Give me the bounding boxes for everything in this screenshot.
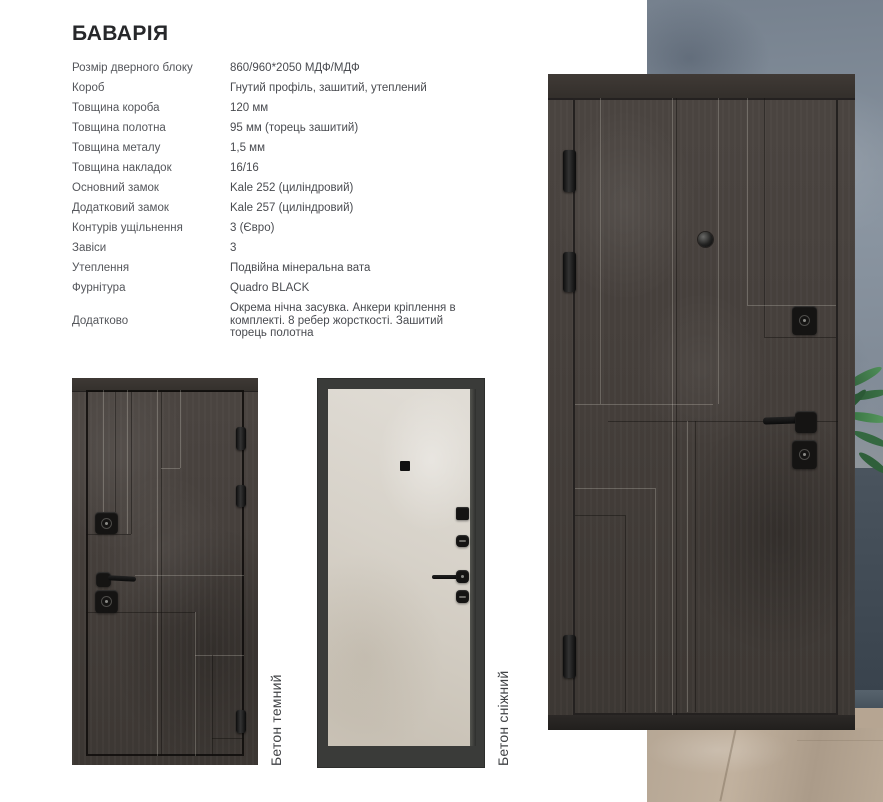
spec-row: УтепленняПодвійна мінеральна вата xyxy=(72,262,492,275)
key-slot xyxy=(459,596,466,598)
spec-label: Короб xyxy=(72,82,230,95)
pattern-line xyxy=(747,305,836,306)
leaf-edge xyxy=(470,389,476,746)
spec-value: 16/16 xyxy=(230,162,488,175)
pattern-line xyxy=(747,98,748,305)
spec-value: Quadro BLACK xyxy=(230,282,488,295)
pattern-line xyxy=(625,515,626,712)
spec-label: Товщина короба xyxy=(72,102,230,115)
spec-row: Товщина короба120 мм xyxy=(72,102,492,115)
pattern-line xyxy=(575,488,655,489)
plant-leaf xyxy=(857,450,883,476)
spec-value: Kale 257 (циліндровий) xyxy=(230,202,488,215)
lock-cylinder xyxy=(95,590,118,613)
spec-value: 860/960*2050 МДФ/МДФ xyxy=(230,62,488,75)
pattern-line xyxy=(676,98,677,715)
spec-value: Kale 252 (циліндровий) xyxy=(230,182,488,195)
spec-table: Розмір дверного блоку860/960*2050 МДФ/МД… xyxy=(72,62,492,347)
spec-row: Основний замокKale 252 (циліндровий) xyxy=(72,182,492,195)
tile-line xyxy=(797,740,883,741)
plant-leaf xyxy=(852,428,883,450)
spec-label: Основний замок xyxy=(72,182,230,195)
pattern-line xyxy=(161,390,162,756)
pattern-line xyxy=(718,98,719,404)
hinge xyxy=(236,710,246,733)
spec-label: Завіси xyxy=(72,242,230,255)
hinge xyxy=(563,150,576,192)
handle-knob xyxy=(461,575,464,578)
variant-label-snow-concrete: Бетон сніжний xyxy=(495,671,511,766)
latch-knob xyxy=(105,522,108,525)
variant-label-dark-concrete: Бетон темний xyxy=(268,674,284,766)
door-preview-snow-concrete xyxy=(317,378,485,768)
door-panel xyxy=(328,389,476,746)
pattern-line xyxy=(672,98,673,715)
door-handle xyxy=(763,416,799,424)
latch-slot xyxy=(459,540,466,542)
spec-value: Гнутий профіль, зашитий, утеплений xyxy=(230,82,488,95)
handle-rosette xyxy=(795,411,817,433)
pattern-line xyxy=(695,421,696,712)
pattern-line xyxy=(575,404,713,405)
pattern-line xyxy=(212,738,244,739)
spec-label: Додатковий замок xyxy=(72,202,230,215)
spec-row: Розмір дверного блоку860/960*2050 МДФ/МД… xyxy=(72,62,492,75)
spec-row: ДодатковоОкрема нічна засувка. Анкери кр… xyxy=(72,302,492,340)
floor xyxy=(851,708,883,730)
spec-label: Додатково xyxy=(72,315,230,328)
baseboard xyxy=(851,690,883,710)
hinge xyxy=(563,635,576,678)
spec-value: 120 мм xyxy=(230,102,488,115)
pattern-line xyxy=(195,655,244,656)
pattern-line xyxy=(127,390,128,534)
spec-row: Завіси3 xyxy=(72,242,492,255)
door-preview-dark-concrete xyxy=(72,378,258,765)
door-photo-scene xyxy=(548,74,855,730)
peephole xyxy=(698,232,713,247)
hinge xyxy=(236,427,246,450)
pattern-line xyxy=(131,390,132,534)
spec-label: Товщина накладок xyxy=(72,162,230,175)
lock-cylinder xyxy=(456,590,469,603)
page-title: БАВАРІЯ xyxy=(72,22,168,46)
door-frame-top xyxy=(548,74,855,100)
pattern-line xyxy=(212,655,213,756)
spec-label: Товщина металу xyxy=(72,142,230,155)
pattern-line xyxy=(115,390,116,512)
spec-row: Контурів ущільнення3 (Євро) xyxy=(72,222,492,235)
pattern-line xyxy=(600,98,601,404)
lock-cylinder xyxy=(792,440,817,469)
door-threshold xyxy=(548,715,855,730)
latch-knob xyxy=(803,319,806,322)
spec-label: Розмір дверного блоку xyxy=(72,62,230,75)
spec-label: Утеплення xyxy=(72,262,230,275)
pattern-line xyxy=(86,534,131,535)
pattern-line xyxy=(687,421,688,712)
night-latch xyxy=(792,306,817,335)
pattern-line xyxy=(157,390,158,756)
pattern-line xyxy=(135,575,244,576)
night-latch xyxy=(456,535,469,547)
pattern-line xyxy=(764,98,765,337)
spec-value: 3 xyxy=(230,242,488,255)
top-lock xyxy=(456,507,469,520)
product-sheet: БАВАРІЯ Розмір дверного блоку860/960*205… xyxy=(0,0,883,802)
spec-value: 3 (Євро) xyxy=(230,222,488,235)
door-handle xyxy=(432,575,458,579)
spec-row: КоробГнутий профіль, зашитий, утеплений xyxy=(72,82,492,95)
pattern-line xyxy=(180,390,181,468)
spec-row: Товщина накладок16/16 xyxy=(72,162,492,175)
handle-rosette xyxy=(456,570,469,583)
floor xyxy=(647,728,883,802)
peephole xyxy=(400,461,410,471)
spec-label: Товщина полотна xyxy=(72,122,230,135)
spec-label: Фурнітура xyxy=(72,282,230,295)
pattern-line xyxy=(655,488,656,712)
door-leaf xyxy=(573,98,838,715)
pattern-line xyxy=(195,612,196,756)
spec-row: ФурнітураQuadro BLACK xyxy=(72,282,492,295)
spec-row: Додатковий замокKale 257 (циліндровий) xyxy=(72,202,492,215)
spec-value: Окрема нічна засувка. Анкери кріплення в… xyxy=(230,302,468,340)
spec-row: Товщина металу1,5 мм xyxy=(72,142,492,155)
spec-value: Подвійна мінеральна вата xyxy=(230,262,488,275)
hinge xyxy=(236,485,246,507)
spec-label: Контурів ущільнення xyxy=(72,222,230,235)
pattern-line xyxy=(764,337,836,338)
cylinder-key xyxy=(803,453,806,456)
pattern-line xyxy=(103,390,104,512)
night-latch xyxy=(95,512,118,534)
pattern-line xyxy=(575,515,625,516)
pattern-line xyxy=(161,468,180,469)
cylinder-key xyxy=(105,600,108,603)
spec-value: 1,5 мм xyxy=(230,142,488,155)
spec-value: 95 мм (торець зашитий) xyxy=(230,122,488,135)
tile-line xyxy=(719,729,736,802)
hinge xyxy=(563,252,576,292)
spec-row: Товщина полотна95 мм (торець зашитий) xyxy=(72,122,492,135)
